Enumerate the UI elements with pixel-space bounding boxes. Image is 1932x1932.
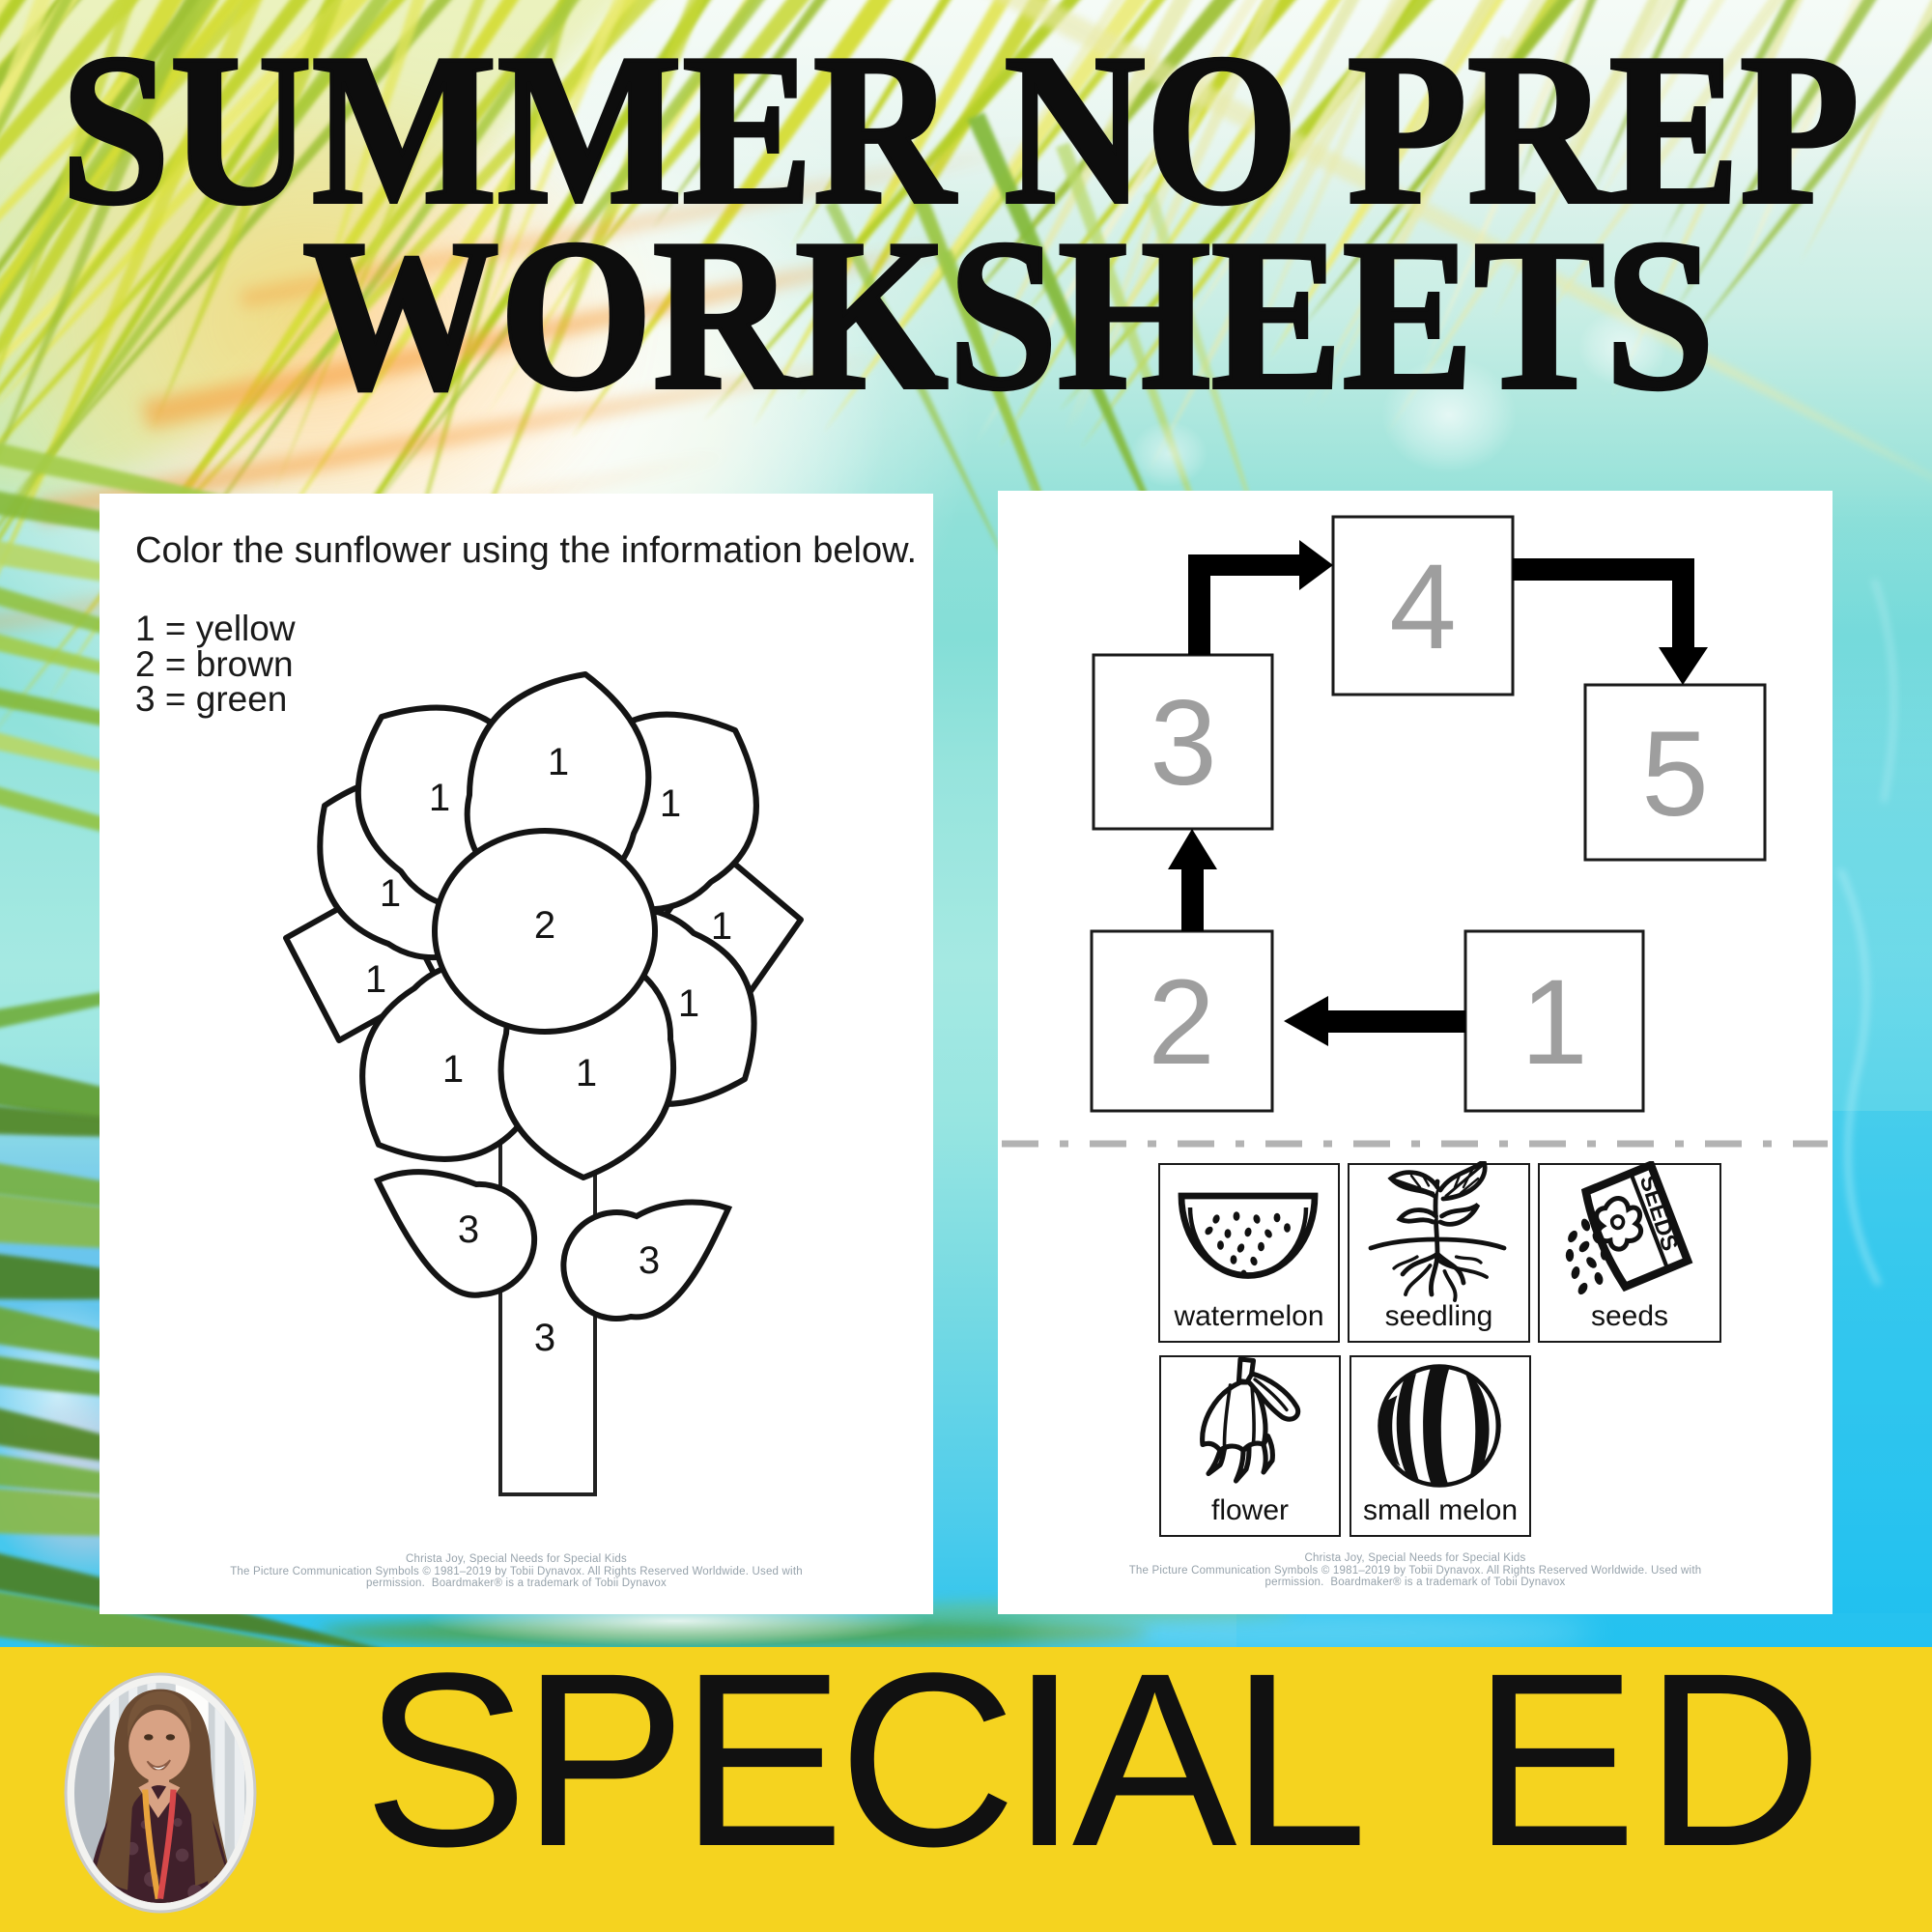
svg-text:SPECIAL: SPECIAL [363,1647,1368,1898]
svg-text:1: 1 [1520,955,1588,1090]
svg-text:3: 3 [639,1239,660,1282]
svg-text:1: 1 [678,982,699,1025]
svg-text:ED: ED [1472,1647,1823,1898]
svg-text:2: 2 [1148,955,1215,1090]
svg-text:3: 3 [534,1317,555,1359]
svg-text:4: 4 [1389,540,1457,674]
svg-text:1: 1 [429,777,450,819]
svg-text:1: 1 [576,1052,597,1094]
svg-text:3: 3 [1150,676,1217,810]
svg-text:1: 1 [548,741,569,783]
svg-text:1: 1 [660,782,681,825]
svg-text:1: 1 [711,905,732,948]
svg-text:3: 3 [458,1208,479,1251]
svg-text:2: 2 [534,904,555,947]
svg-text:1: 1 [365,958,386,1001]
svg-text:1: 1 [380,872,401,915]
svg-text:5: 5 [1641,707,1709,841]
svg-text:1: 1 [442,1048,464,1091]
svg-text:WORKSHEETS: WORKSHEETS [302,195,1715,435]
